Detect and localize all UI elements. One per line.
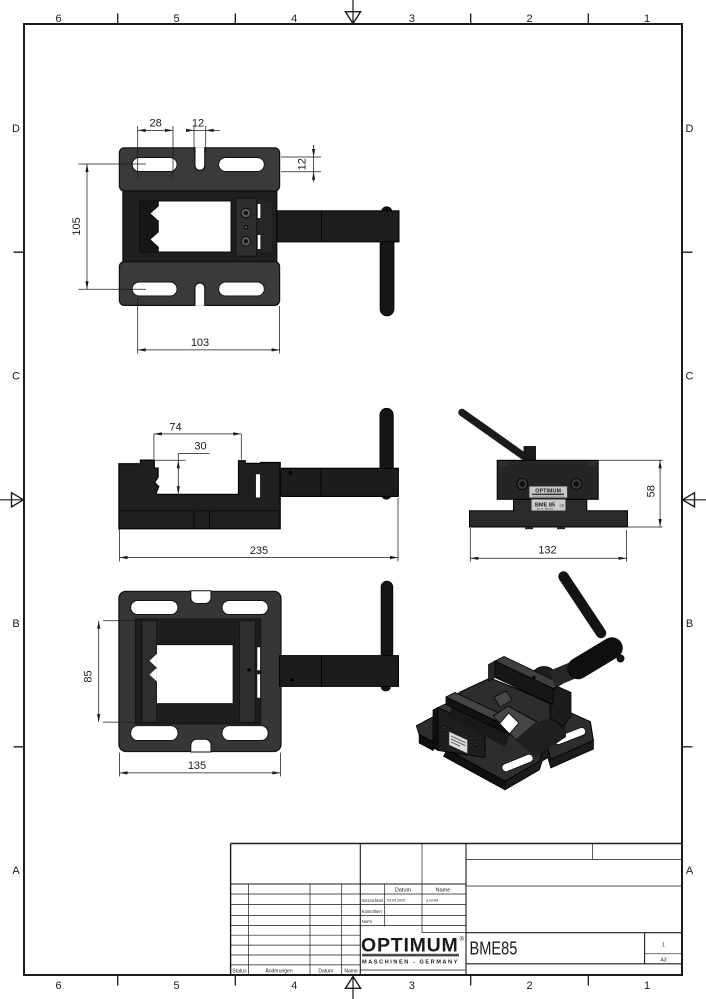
svg-text:28: 28 [149, 118, 161, 130]
svg-text:MASCHINEN - GERMANY: MASCHINEN - GERMANY [362, 960, 459, 966]
svg-text:132: 132 [538, 545, 556, 557]
svg-text:BME85: BME85 [470, 938, 518, 959]
svg-text:4: 4 [291, 13, 297, 25]
svg-text:6: 6 [55, 980, 61, 992]
svg-text:C: C [12, 371, 20, 383]
svg-text:Name: Name [436, 888, 451, 894]
svg-text:A: A [12, 865, 20, 877]
svg-text:Name: Name [344, 969, 358, 975]
svg-text:1: 1 [644, 980, 650, 992]
svg-text:58: 58 [646, 485, 658, 497]
svg-text:74: 74 [169, 421, 181, 433]
svg-text:D: D [686, 123, 694, 135]
svg-text:235: 235 [250, 545, 268, 557]
svg-text:12: 12 [192, 118, 204, 130]
svg-text:A3: A3 [660, 958, 666, 964]
svg-text:4: 4 [291, 980, 297, 992]
svg-text:Gezeichnet: Gezeichnet [362, 898, 384, 903]
svg-text:Kontrolliert: Kontrolliert [362, 909, 383, 914]
svg-text:Norm: Norm [362, 919, 373, 924]
svg-text:5: 5 [173, 980, 179, 992]
svg-text:Änderungen: Änderungen [265, 968, 292, 975]
svg-text:B: B [12, 618, 19, 630]
svg-text:a.schell: a.schell [426, 899, 438, 903]
svg-text:BME 85: BME 85 [535, 503, 555, 509]
svg-text:1: 1 [644, 13, 650, 25]
svg-text:3: 3 [409, 13, 415, 25]
svg-text:®: ® [460, 936, 465, 943]
svg-text:105: 105 [71, 217, 83, 235]
svg-text:03.04.2020: 03.04.2020 [387, 899, 405, 903]
svg-text:30: 30 [194, 441, 206, 453]
svg-text:Art.-Nr. 3354115: Art.-Nr. 3354115 [537, 508, 554, 511]
svg-text:103: 103 [191, 337, 209, 349]
svg-text:C: C [686, 371, 694, 383]
svg-text:12: 12 [297, 158, 309, 170]
svg-text:Datum: Datum [395, 888, 412, 894]
svg-text:2: 2 [526, 13, 532, 25]
svg-text:3: 3 [409, 980, 415, 992]
svg-text:OPTIMUM: OPTIMUM [361, 935, 458, 957]
svg-text:B: B [686, 618, 693, 630]
svg-text:135: 135 [188, 760, 206, 772]
svg-text:5: 5 [173, 13, 179, 25]
svg-text:A: A [686, 865, 694, 877]
svg-text:Status: Status [232, 969, 247, 975]
svg-text:1: 1 [662, 943, 665, 949]
svg-text:CE: CE [560, 504, 565, 508]
svg-text:85: 85 [83, 670, 95, 682]
svg-text:6: 6 [55, 13, 61, 25]
svg-text:2: 2 [526, 980, 532, 992]
svg-text:Datum: Datum [318, 969, 333, 975]
svg-text:D: D [12, 123, 20, 135]
